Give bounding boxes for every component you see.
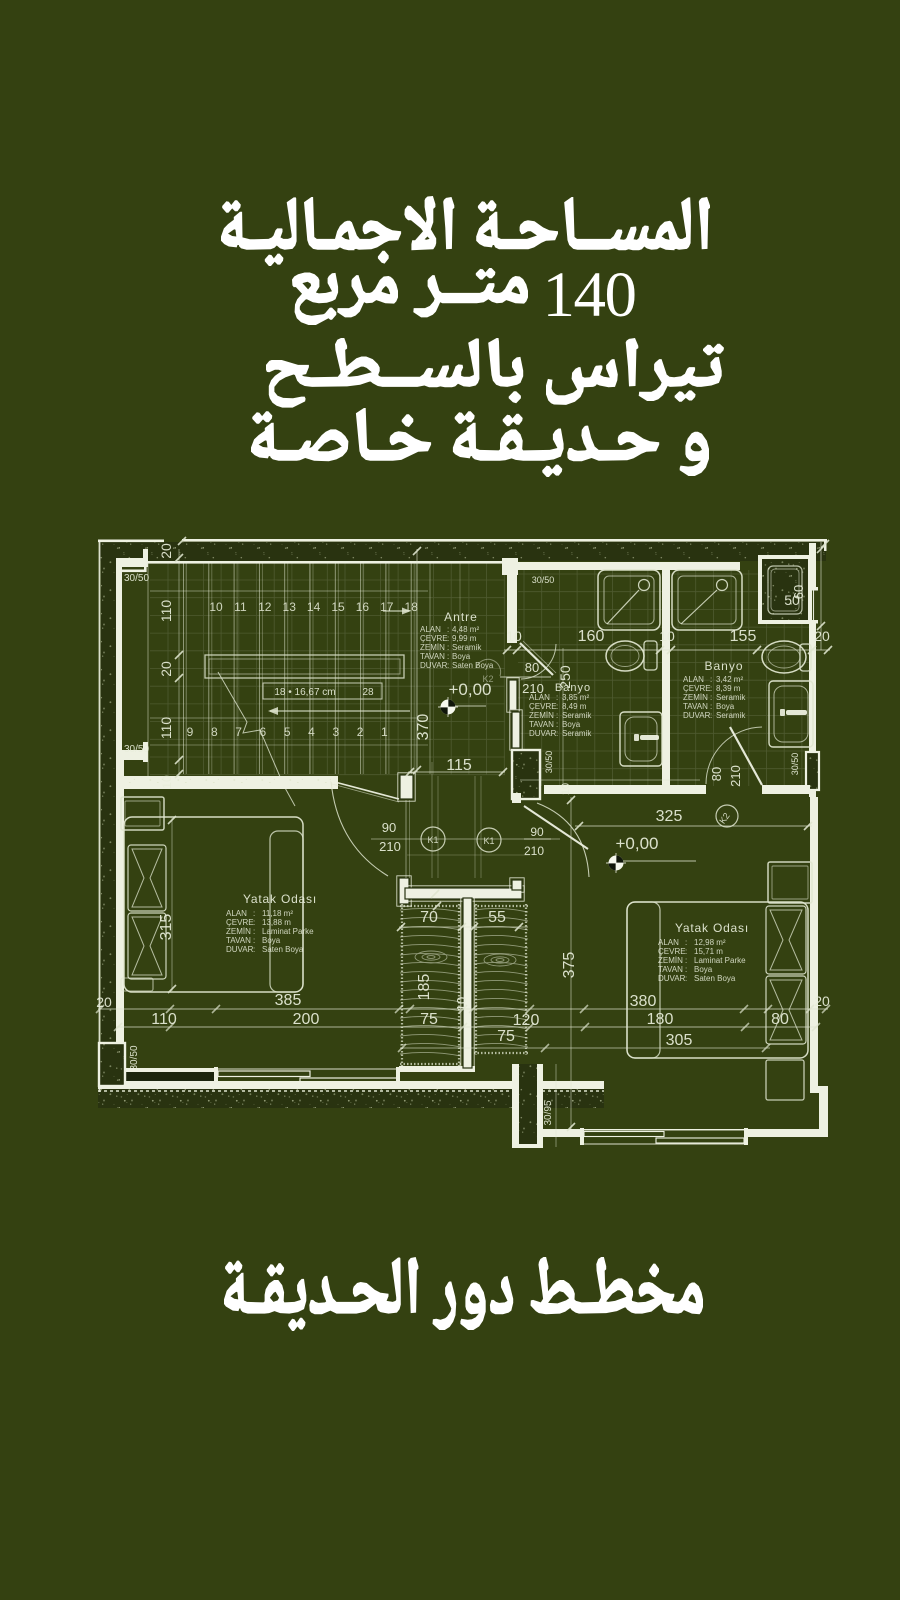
svg-text:ÇEVRE: ÇEVRE — [420, 634, 448, 643]
svg-text::: : — [253, 927, 255, 936]
svg-text:9,99 m: 9,99 m — [452, 634, 477, 643]
svg-text::: : — [556, 720, 558, 729]
svg-text::: : — [685, 974, 687, 983]
svg-text::: : — [710, 684, 712, 693]
svg-text:Yatak Odası: Yatak Odası — [243, 892, 317, 906]
svg-text:10: 10 — [454, 997, 469, 1011]
svg-text:180: 180 — [647, 1011, 674, 1028]
svg-text:325: 325 — [656, 808, 683, 825]
svg-text:Saten Boya: Saten Boya — [694, 974, 736, 983]
svg-text:80: 80 — [709, 767, 724, 781]
svg-text:+0,00: +0,00 — [615, 834, 658, 853]
svg-text:+0,00: +0,00 — [448, 680, 491, 699]
svg-text:15,71 m: 15,71 m — [694, 947, 723, 956]
svg-text:12: 12 — [258, 600, 272, 614]
svg-text:385: 385 — [275, 992, 302, 1009]
svg-text:115: 115 — [446, 757, 472, 774]
svg-text:3,42 m²: 3,42 m² — [716, 675, 743, 684]
svg-text:210: 210 — [524, 844, 544, 858]
svg-text:ALAN: ALAN — [420, 625, 441, 634]
svg-text:Seramik: Seramik — [716, 693, 746, 702]
svg-text:DUVAR: DUVAR — [529, 729, 557, 738]
svg-text:60: 60 — [791, 585, 806, 599]
svg-text:3: 3 — [332, 725, 339, 739]
svg-text:ZEMİN: ZEMİN — [683, 693, 708, 702]
svg-text:8,49 m: 8,49 m — [562, 702, 587, 711]
svg-text:155: 155 — [730, 628, 757, 645]
svg-text:30/50: 30/50 — [129, 1045, 140, 1070]
svg-text:ZEMİN: ZEMİN — [529, 711, 554, 720]
svg-text:TAVAN: TAVAN — [226, 936, 251, 945]
svg-text:Saten Boya: Saten Boya — [262, 945, 304, 954]
svg-text:110: 110 — [151, 1011, 177, 1028]
svg-text:30/50: 30/50 — [124, 573, 149, 584]
svg-text::: : — [685, 965, 687, 974]
svg-text:ALAN: ALAN — [683, 675, 704, 684]
svg-text:18 • 16,67 cm: 18 • 16,67 cm — [274, 687, 335, 698]
svg-text:12,98 m²: 12,98 m² — [694, 938, 726, 947]
svg-text:20: 20 — [158, 661, 174, 677]
svg-text:14: 14 — [307, 600, 321, 614]
svg-text:Seramik: Seramik — [716, 711, 746, 720]
svg-text:4,48 m²: 4,48 m² — [452, 625, 479, 634]
svg-text:375: 375 — [561, 952, 578, 979]
svg-text:ALAN: ALAN — [658, 938, 679, 947]
svg-text:10: 10 — [560, 783, 572, 795]
svg-text:370: 370 — [415, 714, 432, 741]
svg-text::: : — [447, 661, 449, 670]
svg-text:315: 315 — [158, 914, 175, 941]
svg-text::: : — [556, 693, 558, 702]
svg-text:Seramik: Seramik — [562, 729, 592, 738]
svg-text::: : — [253, 909, 255, 918]
svg-text:30/50: 30/50 — [544, 751, 554, 774]
svg-text::: : — [253, 936, 255, 945]
svg-text::: : — [710, 675, 712, 684]
svg-text::: : — [556, 729, 558, 738]
svg-text:Boya: Boya — [452, 652, 471, 661]
svg-text:K1: K1 — [483, 836, 494, 846]
svg-text:DUVAR: DUVAR — [683, 711, 711, 720]
svg-text:Boya: Boya — [562, 720, 581, 729]
svg-text::: : — [253, 945, 255, 954]
svg-text:11,18 m²: 11,18 m² — [262, 909, 293, 918]
svg-text::: : — [685, 938, 687, 947]
svg-text:90: 90 — [382, 820, 396, 835]
svg-text:110: 110 — [158, 717, 174, 740]
svg-text:Antre: Antre — [444, 610, 478, 624]
svg-text:2: 2 — [357, 725, 364, 739]
svg-text:380: 380 — [630, 993, 657, 1010]
svg-text:DUVAR: DUVAR — [226, 945, 254, 954]
svg-text:TAVAN: TAVAN — [683, 702, 708, 711]
svg-text::: : — [710, 711, 712, 720]
svg-text:Boya: Boya — [716, 702, 735, 711]
svg-text:ALAN: ALAN — [226, 909, 247, 918]
svg-text::: : — [556, 711, 558, 720]
svg-text::: : — [447, 643, 449, 652]
svg-text:210: 210 — [379, 839, 401, 854]
svg-text:TAVAN: TAVAN — [420, 652, 445, 661]
svg-text:13: 13 — [283, 600, 297, 614]
svg-text:Boya: Boya — [262, 936, 281, 945]
svg-text:Boya: Boya — [694, 965, 713, 974]
svg-text:TAVAN: TAVAN — [529, 720, 554, 729]
svg-text:3,85 m²: 3,85 m² — [562, 693, 589, 702]
svg-text:8,39 m: 8,39 m — [716, 684, 741, 693]
svg-text:ÇEVRE: ÇEVRE — [658, 947, 686, 956]
svg-text:16: 16 — [356, 600, 370, 614]
svg-text:110: 110 — [158, 600, 174, 623]
svg-text::: : — [685, 956, 687, 965]
svg-text:305: 305 — [666, 1032, 693, 1049]
svg-text:30/50: 30/50 — [790, 753, 800, 776]
svg-text::: : — [685, 947, 687, 956]
svg-text:75: 75 — [497, 1028, 515, 1045]
svg-text:Laminat Parke: Laminat Parke — [262, 927, 314, 936]
svg-text:80: 80 — [525, 660, 539, 675]
svg-text:ÇEVRE: ÇEVRE — [226, 918, 254, 927]
svg-text:28: 28 — [362, 687, 374, 698]
svg-text::: : — [253, 918, 255, 927]
svg-text:Laminat Parke: Laminat Parke — [694, 956, 746, 965]
svg-text:ZEMİN: ZEMİN — [658, 956, 683, 965]
svg-text:5: 5 — [284, 725, 291, 739]
svg-text:10: 10 — [209, 600, 223, 614]
svg-text:11: 11 — [234, 600, 247, 614]
svg-text:9: 9 — [187, 725, 194, 739]
svg-text:ZEMİN: ZEMİN — [226, 927, 251, 936]
svg-text:75: 75 — [420, 1011, 438, 1028]
svg-text:80: 80 — [771, 1011, 789, 1028]
svg-text:10: 10 — [659, 628, 675, 644]
svg-text:8: 8 — [211, 725, 218, 739]
svg-text:20: 20 — [814, 993, 830, 1009]
svg-text:TAVAN: TAVAN — [658, 965, 683, 974]
svg-text:10: 10 — [160, 775, 174, 789]
svg-text:30/50: 30/50 — [532, 575, 555, 585]
svg-text:DUVAR: DUVAR — [658, 974, 686, 983]
svg-text:1: 1 — [381, 725, 388, 739]
svg-text:30/95: 30/95 — [543, 1100, 554, 1125]
svg-text:55: 55 — [488, 909, 506, 926]
svg-text:Banyo: Banyo — [704, 659, 743, 673]
svg-text:200: 200 — [293, 1011, 320, 1028]
svg-text:K1: K1 — [427, 835, 438, 845]
svg-text:Saten Boya: Saten Boya — [452, 661, 494, 670]
svg-text:20: 20 — [158, 543, 174, 559]
svg-text::: : — [556, 702, 558, 711]
svg-text:17: 17 — [380, 600, 394, 614]
svg-text::: : — [710, 693, 712, 702]
svg-text:Seramik: Seramik — [562, 711, 592, 720]
svg-text:Seramik: Seramik — [452, 643, 482, 652]
svg-text:20: 20 — [814, 628, 830, 644]
svg-text:DUVAR: DUVAR — [420, 661, 448, 670]
svg-text::: : — [447, 634, 449, 643]
svg-text:ZEMİN: ZEMİN — [420, 643, 445, 652]
svg-text:140: 140 — [543, 259, 636, 331]
svg-text:4: 4 — [308, 725, 315, 739]
svg-text:30/50: 30/50 — [124, 744, 149, 755]
svg-text:15: 15 — [331, 600, 345, 614]
svg-text:ÇEVRE: ÇEVRE — [683, 684, 711, 693]
svg-text:185: 185 — [416, 974, 433, 1001]
svg-text::: : — [447, 625, 449, 634]
svg-text:20: 20 — [96, 994, 112, 1010]
svg-text:10: 10 — [506, 628, 522, 644]
svg-text:Yatak Odası: Yatak Odası — [675, 921, 749, 935]
svg-text:120: 120 — [513, 1012, 540, 1029]
svg-text::: : — [710, 702, 712, 711]
svg-text:250: 250 — [557, 665, 573, 689]
svg-text:70: 70 — [420, 909, 438, 926]
svg-text::: : — [447, 652, 449, 661]
svg-text:90: 90 — [530, 825, 544, 839]
svg-text:210: 210 — [522, 681, 544, 696]
svg-text:210: 210 — [728, 765, 743, 787]
svg-text:ÇEVRE: ÇEVRE — [529, 702, 557, 711]
svg-text:13,88 m: 13,88 m — [262, 918, 291, 927]
svg-text:160: 160 — [578, 628, 605, 645]
svg-text:7: 7 — [235, 725, 242, 739]
